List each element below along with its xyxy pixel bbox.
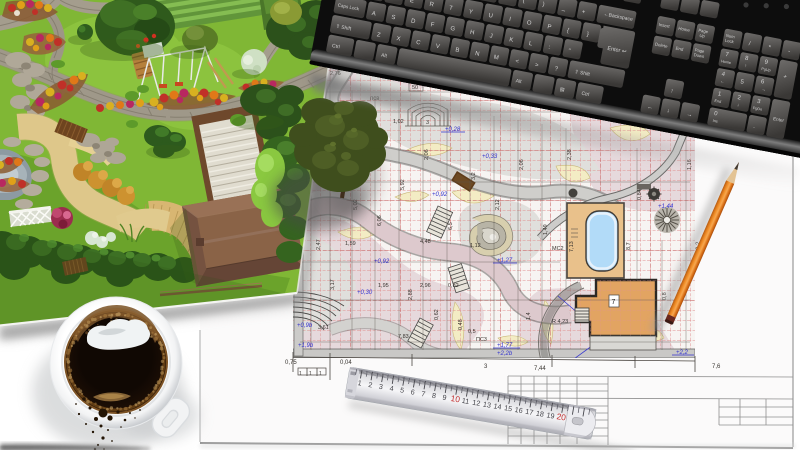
svg-text:19: 19 [546,410,555,420]
svg-text:1,95: 1,95 [378,283,389,289]
svg-text:0,75: 0,75 [285,360,297,366]
svg-text:←: ← [647,104,654,111]
svg-text:0,5: 0,5 [468,329,476,335]
svg-text:←: ← [720,79,725,85]
svg-text:12: 12 [472,398,481,408]
svg-text:МС2: МС2 [552,246,564,252]
svg-text:1: 1 [309,371,312,377]
svg-text:50: 50 [412,85,418,91]
svg-text:+0,92: +0,92 [432,192,448,198]
svg-text:ПС3: ПС3 [476,337,487,343]
svg-text:+0,30: +0,30 [357,290,373,296]
svg-text:0,04: 0,04 [340,360,352,366]
svg-text:→: → [686,112,693,119]
svg-text:6,5: 6,5 [448,222,454,230]
svg-text:5,92: 5,92 [400,179,406,190]
svg-text:→: → [761,86,766,92]
svg-text:1: 1 [319,371,322,377]
svg-text:2,38: 2,38 [567,149,573,160]
svg-text:2,06: 2,06 [519,159,525,170]
svg-text:18: 18 [535,409,544,419]
svg-text:6,06: 6,06 [377,215,383,226]
svg-text:2,96: 2,96 [420,283,431,289]
svg-text:3,61: 3,61 [318,325,329,331]
svg-text:+0,33: +0,33 [482,154,498,160]
svg-text:15: 15 [504,403,513,413]
svg-text:R 4,23: R 4,23 [552,319,568,325]
svg-text:7,83: 7,83 [398,334,409,340]
svg-text:8,7: 8,7 [626,242,632,250]
svg-text:2,06: 2,06 [424,149,430,160]
svg-text:0,48: 0,48 [458,319,464,330]
svg-text:3: 3 [426,120,429,126]
svg-text:1,4: 1,4 [526,312,532,320]
svg-text:3,17: 3,17 [330,279,336,290]
svg-text:1,12: 1,12 [470,243,481,249]
svg-text:1: 1 [299,371,302,377]
svg-text:17: 17 [525,407,534,417]
svg-text:1,49: 1,49 [543,224,549,235]
svg-text:13: 13 [482,400,491,410]
svg-text:14: 14 [493,401,502,411]
svg-text:+0,9b: +0,9b [297,323,313,329]
svg-text:1,02: 1,02 [393,119,404,125]
svg-text:7,13: 7,13 [569,241,575,252]
svg-text:16: 16 [514,405,523,415]
svg-text:0,84: 0,84 [637,189,643,200]
svg-text:2,88: 2,88 [408,289,414,300]
svg-text:+0,92: +0,92 [374,259,390,265]
svg-text:+2,2b: +2,2b [497,351,513,357]
svg-text:3,2: 3,2 [471,172,477,180]
svg-text:2,12: 2,12 [495,199,501,210]
svg-text:0,62: 0,62 [434,309,440,320]
svg-text:7,6: 7,6 [712,364,721,370]
svg-text:0,82: 0,82 [448,283,459,289]
svg-text:4,48: 4,48 [420,239,431,245]
svg-text:+1,9b: +1,9b [298,343,314,349]
svg-text:7,44: 7,44 [534,366,546,372]
svg-text:1,59: 1,59 [345,241,356,247]
svg-text:+1,44: +1,44 [658,204,674,210]
svg-text:2,47: 2,47 [316,239,322,250]
svg-text:11: 11 [461,396,470,406]
